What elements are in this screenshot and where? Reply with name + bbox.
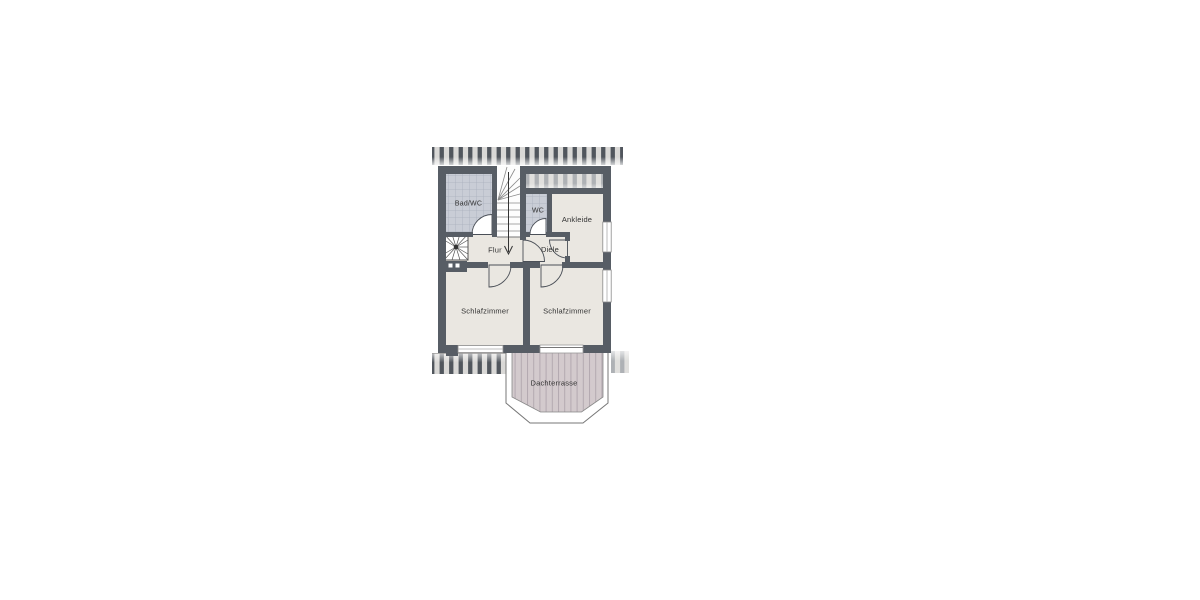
spiral-staircase-icon bbox=[444, 234, 468, 260]
room-label-wc: WC bbox=[532, 208, 544, 215]
roof-hatch-icon bbox=[611, 351, 629, 373]
wall bbox=[446, 345, 458, 356]
wall bbox=[510, 262, 540, 268]
window-icon bbox=[603, 222, 611, 252]
window-icon bbox=[458, 346, 503, 353]
wall bbox=[565, 256, 570, 262]
wall bbox=[526, 166, 611, 174]
wall bbox=[603, 166, 611, 222]
roof-hatch-icon bbox=[432, 147, 623, 165]
room-label-schlafzimmer-links: Schlafzimmer bbox=[461, 307, 509, 316]
wall bbox=[438, 166, 492, 174]
window-icon bbox=[603, 270, 611, 302]
room-label-flur: Flur bbox=[488, 246, 502, 255]
room-label-dachterrasse: Dachterrasse bbox=[530, 379, 577, 388]
room-label-bad-wc: Bad/WC bbox=[455, 201, 482, 208]
wall bbox=[520, 188, 603, 194]
wall bbox=[492, 166, 497, 237]
room-label-ankleide: Ankleide bbox=[562, 215, 592, 224]
floor-plan-page: Bad/WC WC Ankleide Flur Diele Schlafzimm… bbox=[0, 0, 1200, 600]
wall bbox=[520, 232, 530, 237]
wall bbox=[520, 166, 526, 237]
wall bbox=[446, 232, 473, 237]
wall bbox=[565, 237, 570, 241]
wall bbox=[546, 232, 570, 237]
room-label-diele: Diele bbox=[541, 245, 559, 254]
wall bbox=[438, 166, 446, 353]
terrace-door-icon bbox=[540, 345, 583, 353]
wall bbox=[503, 345, 540, 353]
chimney-icon bbox=[445, 261, 467, 272]
wall bbox=[562, 262, 611, 268]
wall bbox=[547, 188, 552, 232]
wall bbox=[523, 268, 530, 345]
wall bbox=[520, 237, 526, 240]
wall bbox=[583, 345, 611, 353]
roof-hatch-icon bbox=[432, 353, 506, 374]
room-label-schlafzimmer-rechts: Schlafzimmer bbox=[543, 307, 591, 316]
floor-plan-image: Bad/WC WC Ankleide Flur Diele Schlafzimm… bbox=[0, 0, 1200, 600]
wall bbox=[603, 302, 611, 345]
